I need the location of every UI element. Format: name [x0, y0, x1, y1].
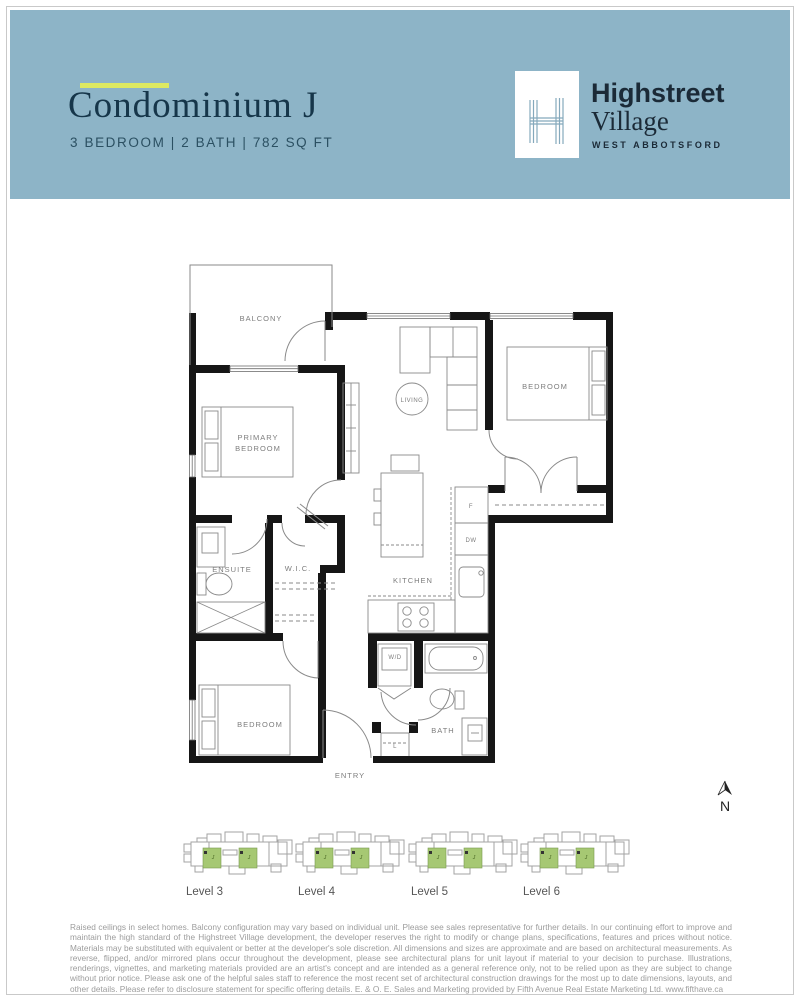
keyplan-diagram: [408, 830, 520, 886]
dishwasher-label: DW: [466, 538, 477, 544]
level-6-label: Level 6: [523, 886, 560, 898]
brand-name-line2: Village: [591, 106, 669, 137]
bedroom-top-label: BEDROOM: [522, 382, 568, 391]
brand-logo: [515, 71, 579, 158]
unit-specs: 3 BEDROOM | 2 BATH | 782 SQ FT: [70, 135, 333, 150]
keyplan-diagram: [520, 830, 632, 886]
level-5-label: Level 5: [411, 886, 448, 898]
keyplan-diagram: [295, 830, 407, 886]
level-4-label: Level 4: [298, 886, 335, 898]
marketing-sheet-page: Condominium J 3 BEDROOM | 2 BATH | 782 S…: [0, 0, 800, 1001]
h-monogram-icon: [515, 71, 579, 158]
wic-label: W.I.C.: [285, 564, 311, 573]
bath-label: BATH: [431, 726, 454, 735]
keyplan-level-3: [183, 830, 295, 891]
compass-icon: N: [712, 779, 738, 815]
fridge-label: F: [469, 504, 473, 510]
north-letter: N: [720, 798, 730, 814]
legal-disclaimer: Raised ceilings in select homes. Balcony…: [70, 922, 732, 994]
brand-name-line1: Highstreet: [591, 78, 725, 109]
walls-layer: [189, 312, 613, 763]
keyplan-level-4: [295, 830, 407, 891]
brand-location: WEST ABBOTSFORD: [592, 140, 723, 150]
primary-bedroom-label-line1: PRIMARY: [237, 433, 278, 442]
balcony-label: BALCONY: [240, 314, 283, 323]
primary-bedroom-label-line2: BEDROOM: [235, 444, 281, 453]
washer-dryer-label: W/D: [388, 655, 401, 661]
north-arrow: N: [712, 779, 738, 820]
floor-plan-drawing: BALCONY PRIMARY BEDROOM LIVING BEDROOM E…: [185, 255, 615, 785]
living-label: LIVING: [401, 398, 424, 404]
ensuite-label: ENSUITE: [212, 565, 252, 574]
keyplan-level-6: [520, 830, 632, 891]
level-3-label: Level 3: [186, 886, 223, 898]
bedroom-bottom-label: BEDROOM: [237, 720, 283, 729]
page-title: Condominium J: [68, 84, 318, 127]
keyplan-level-5: [408, 830, 520, 891]
floor-plan: BALCONY PRIMARY BEDROOM LIVING BEDROOM E…: [185, 255, 615, 790]
entry-label: ENTRY: [335, 771, 365, 780]
kitchen-label: KITCHEN: [393, 576, 433, 585]
keyplan-diagram: [183, 830, 295, 886]
linen-label: L: [393, 744, 397, 750]
